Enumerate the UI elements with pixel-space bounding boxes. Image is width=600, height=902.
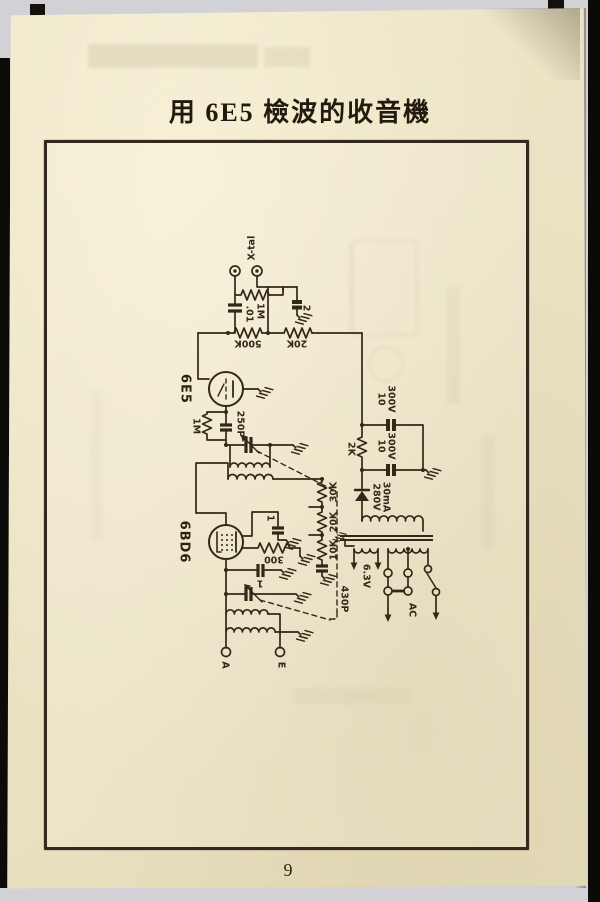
cap-430p-label: 430P <box>339 586 350 613</box>
cap-screen-label: 1 <box>265 515 276 522</box>
detector-top-wiring <box>228 276 312 333</box>
cap-b-v-label: 300V <box>386 432 397 460</box>
tube-6bd6 <box>196 513 243 559</box>
cap-a-v-label: 300V <box>386 385 397 413</box>
ac-label: AC <box>407 603 418 617</box>
filter-cap-b <box>362 463 441 482</box>
tube-6e5 <box>209 372 243 406</box>
resistor-1m-top <box>235 287 283 300</box>
resistor-1m-grid-label: 1M <box>191 418 202 434</box>
cap-b-uf-label: 10 <box>376 439 387 453</box>
earth-terminal-label: E <box>276 662 287 669</box>
circuit-schematic: X-tal .01 1M 2 500K 20K 6E5 <box>0 0 600 902</box>
power-transformer <box>340 516 433 540</box>
cap-250p-label: 250P <box>235 411 246 438</box>
rectifier-diode <box>355 470 369 518</box>
resistor-2k-label: 2K <box>346 442 357 457</box>
resistor-300-label: 300 <box>264 554 284 565</box>
cap-a-uf-label: 10 <box>376 392 387 406</box>
bplus-rail <box>360 333 364 472</box>
heater-voltage-label: 6.3V <box>361 564 372 589</box>
if-transformer <box>196 445 322 513</box>
wire-rail-to-6e5-grid <box>198 333 209 379</box>
antenna-coil <box>222 594 313 657</box>
crystal-earphone-terminals <box>230 266 262 276</box>
tube-6bd6-label: 6BD6 <box>177 521 192 564</box>
resistor-10k-label: 10K <box>329 539 340 560</box>
resistor-30k-label: 30K <box>329 481 340 502</box>
cap-cathode-label: 1 <box>257 578 264 589</box>
tuning-cap-2 <box>224 584 311 606</box>
cap-2-label: 2 <box>301 305 312 312</box>
top-rail <box>198 328 362 338</box>
tuning-cap-1 <box>224 435 308 457</box>
cap-01-label: .01 <box>244 306 255 323</box>
tube-6e5-label: 6E5 <box>178 374 193 404</box>
resistor-500k-label: 500K <box>234 338 262 349</box>
resistor-20k-div-label: 20K <box>329 511 340 532</box>
hv-volts-label: 280V <box>371 483 382 511</box>
resistor-2k <box>358 425 367 470</box>
resistor-1m-top-label: 1M <box>255 303 266 319</box>
xtal-label: X-tal <box>247 236 258 261</box>
resistor-20k-label: 20K <box>286 338 307 349</box>
hv-current-label: 30mA <box>381 482 392 513</box>
grid-leak-network <box>203 406 233 445</box>
antenna-terminal-label: A <box>220 661 231 669</box>
6e5-plate-ground <box>243 382 273 401</box>
